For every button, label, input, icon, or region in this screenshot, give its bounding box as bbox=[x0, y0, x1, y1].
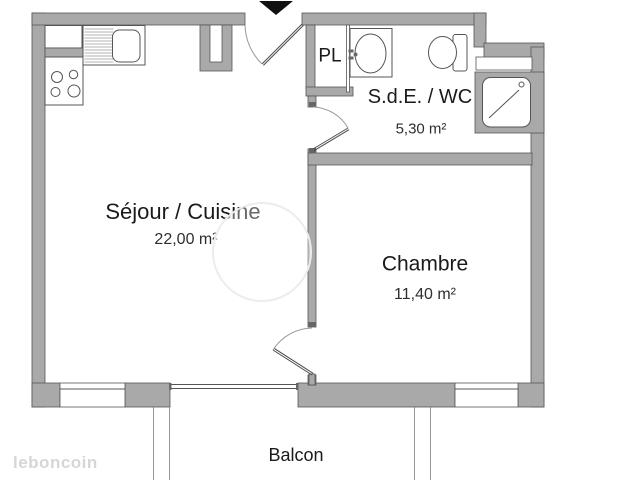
balcony-door-opening bbox=[169, 383, 299, 390]
entry-door bbox=[245, 24, 303, 65]
bedroom-door bbox=[273, 322, 316, 385]
bathroom-door bbox=[309, 102, 349, 153]
room-label-chambre: Chambre bbox=[382, 254, 468, 275]
entry-arrow-icon bbox=[259, 1, 293, 15]
floor-plan: Séjour / Cuisine 22,00 m² Chambre 11,40 … bbox=[0, 0, 640, 480]
room-area-sejour: 22,00 m² bbox=[154, 232, 217, 248]
room-label-sejour: Séjour / Cuisine bbox=[105, 201, 260, 223]
stove-icon bbox=[45, 57, 83, 105]
room-label-placard: PL bbox=[318, 47, 341, 66]
duct-column bbox=[200, 25, 232, 71]
room-area-chambre: 11,40 m² bbox=[394, 287, 456, 303]
kitchen-cabinet-icon bbox=[45, 26, 83, 58]
window-right bbox=[455, 383, 518, 407]
kitchen-sink-icon bbox=[83, 26, 145, 66]
room-label-balcon: Balcon bbox=[268, 446, 323, 464]
window-left bbox=[60, 383, 125, 407]
shower-icon bbox=[475, 72, 544, 133]
balcony-rails bbox=[154, 407, 431, 480]
room-label-sde-wc: S.d.E. / WC bbox=[368, 87, 472, 107]
room-area-sde-wc: 5,30 m² bbox=[396, 122, 447, 137]
toilet-icon bbox=[429, 35, 468, 72]
floor-plan-drawing bbox=[0, 0, 640, 480]
washbasin-icon bbox=[349, 29, 393, 78]
wall-niche bbox=[476, 57, 532, 70]
